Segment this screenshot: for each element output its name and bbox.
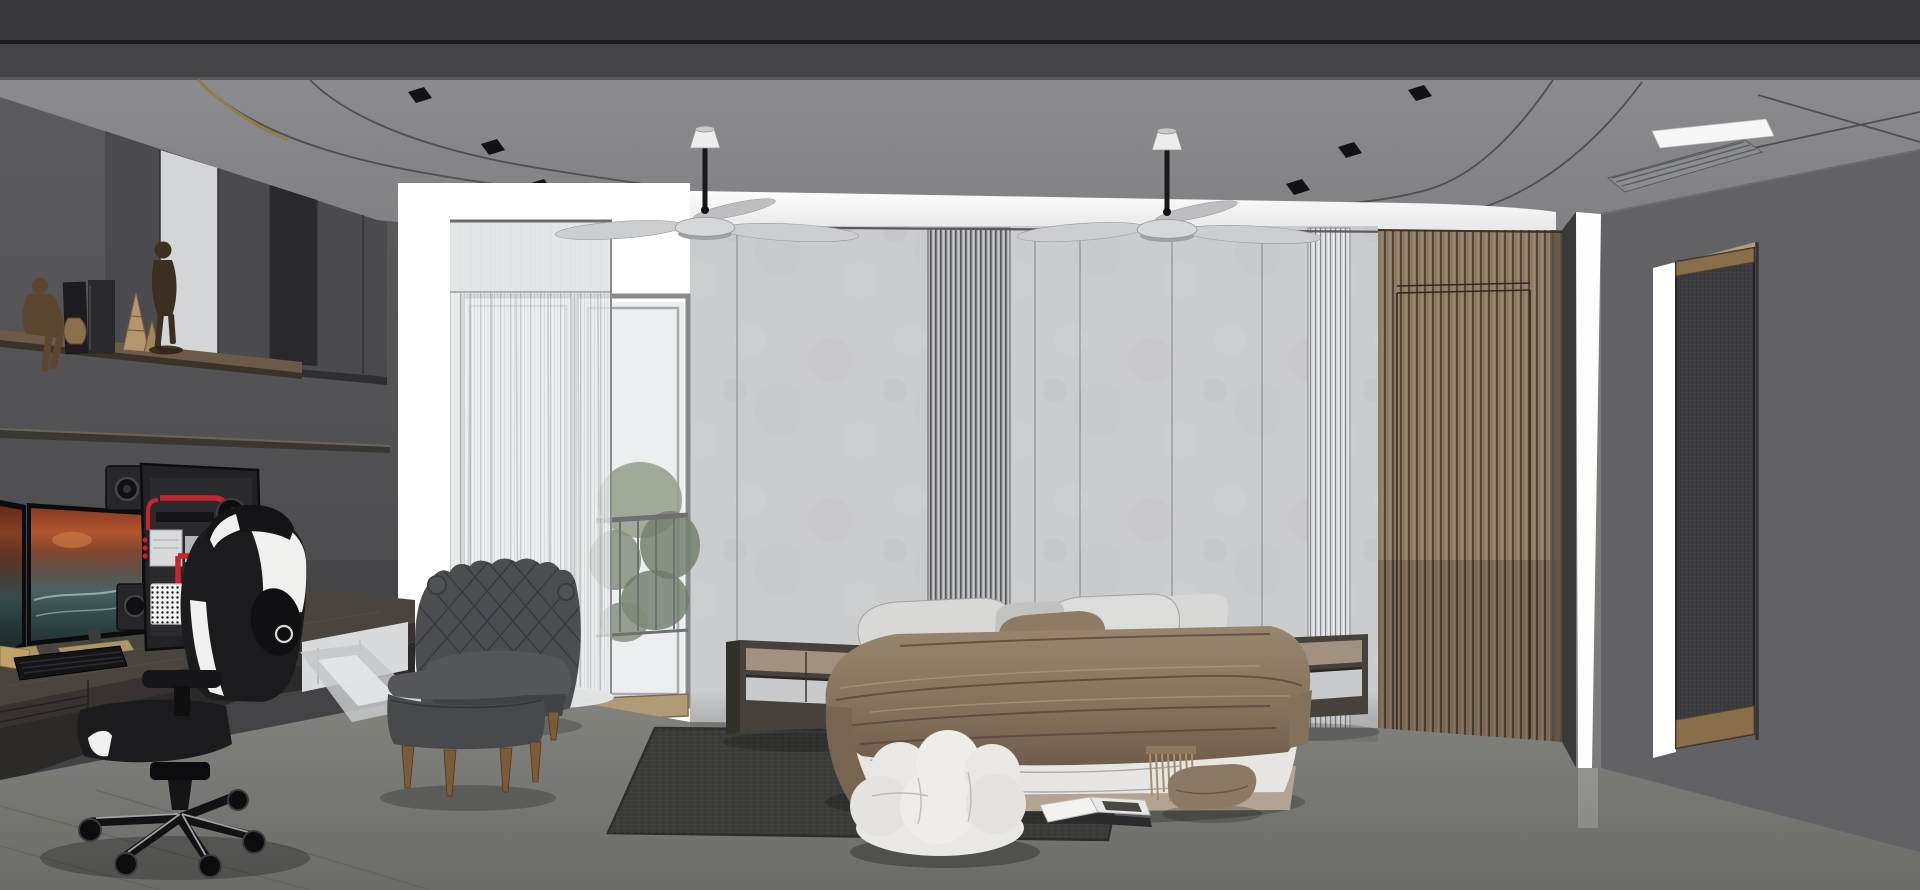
mechanism [150,762,210,780]
corner-light-slot [1576,212,1601,768]
lit-jamb [1653,262,1676,758]
right-zone [1601,150,1920,890]
vase [64,318,87,344]
wood-slat-wall [1378,230,1562,742]
floor-cushion [1162,764,1262,823]
beam-shadow-line [0,40,1920,44]
mesh-screen-doorway [1653,242,1757,758]
red-accents [143,538,148,559]
render-viewport: Modern bedroom interior — 3D architectur… [0,0,1920,890]
soffit-edge [0,77,1920,80]
black-glass-door [270,185,317,366]
gpu [156,512,214,522]
corner-return [1562,212,1576,768]
bedroom-render: Modern bedroom interior — 3D architectur… [0,0,1920,890]
right-wall [1601,150,1920,890]
mesh-screen [1676,248,1754,748]
gas-lift [168,780,192,810]
ceiling-beam [0,0,1920,40]
ceiling-soffit [0,44,1920,77]
light-slot-floor-reflection [1578,768,1598,828]
ottoman [380,668,556,811]
